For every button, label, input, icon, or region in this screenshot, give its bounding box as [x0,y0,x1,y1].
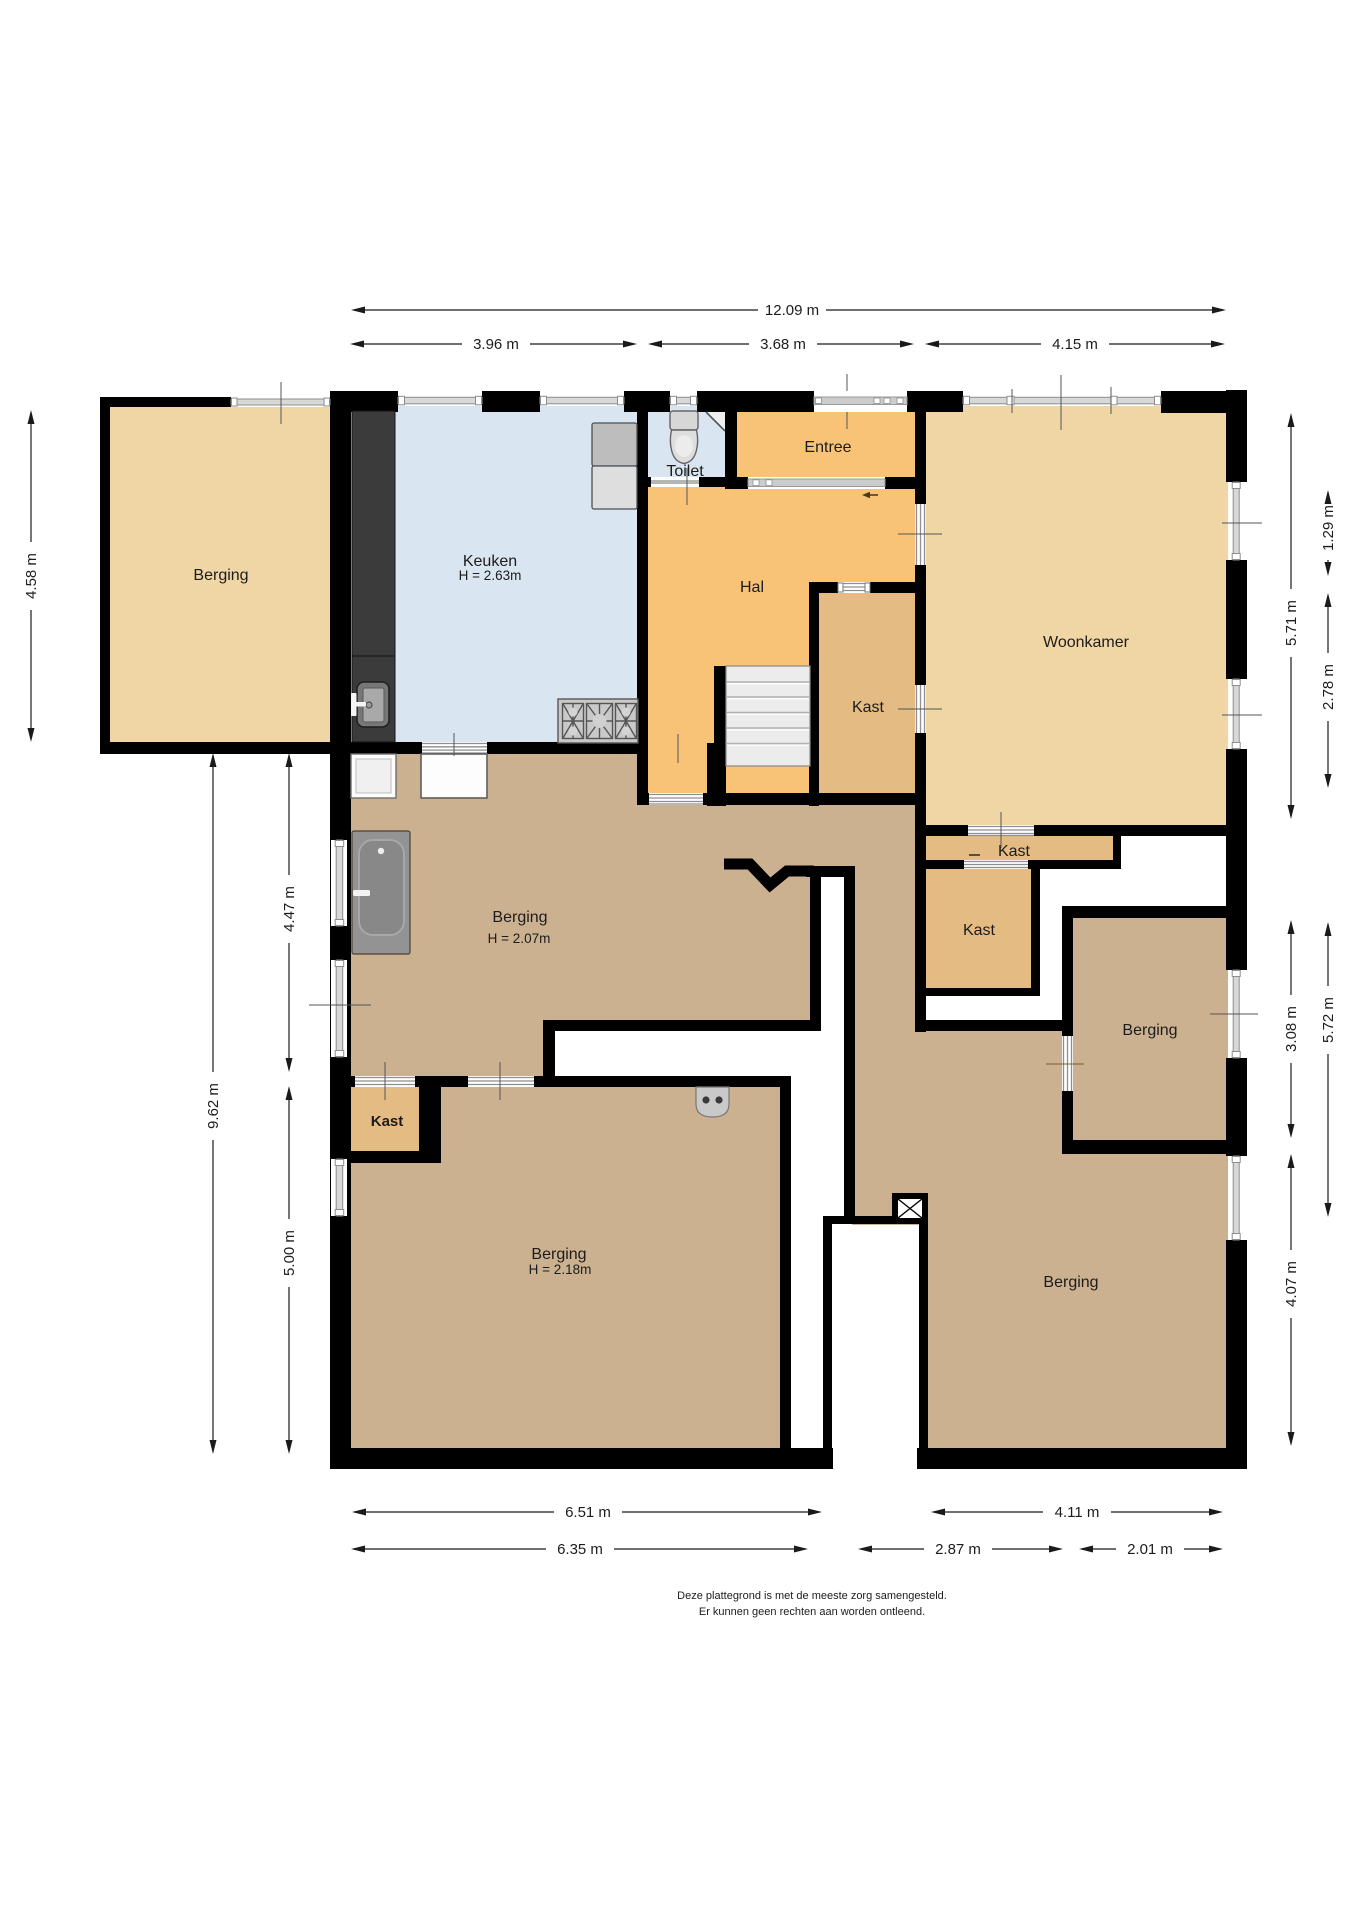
svg-text:Hal: Hal [740,579,764,596]
svg-text:6.35 m: 6.35 m [557,1541,603,1558]
svg-text:H = 2.63m: H = 2.63m [459,568,522,583]
svg-text:Woonkamer: Woonkamer [1043,634,1130,651]
svg-text:Berging: Berging [492,909,547,926]
svg-text:4.07 m: 4.07 m [1283,1261,1300,1307]
svg-text:Deze plattegrond is met de mee: Deze plattegrond is met de meeste zorg s… [677,1590,947,1602]
svg-text:Er kunnen geen rechten aan wor: Er kunnen geen rechten aan worden ontlee… [699,1606,925,1618]
svg-text:5.72 m: 5.72 m [1320,997,1337,1043]
svg-text:3.68 m: 3.68 m [760,336,806,353]
svg-text:5.71 m: 5.71 m [1283,600,1300,646]
svg-text:Kast: Kast [998,843,1031,860]
svg-text:4.47 m: 4.47 m [281,886,298,932]
svg-text:4.58 m: 4.58 m [23,553,40,599]
svg-text:6.51 m: 6.51 m [565,1504,611,1521]
svg-text:Kast: Kast [852,699,885,716]
svg-text:Berging: Berging [531,1246,586,1263]
svg-text:5.00 m: 5.00 m [281,1230,298,1276]
svg-text:3.08 m: 3.08 m [1283,1006,1300,1052]
svg-text:H = 2.18m: H = 2.18m [529,1262,592,1277]
svg-text:Entree: Entree [804,439,851,456]
svg-text:4.15 m: 4.15 m [1052,336,1098,353]
svg-text:H = 2.07m: H = 2.07m [488,931,551,946]
svg-text:Toilet: Toilet [666,463,704,480]
svg-text:2.87 m: 2.87 m [935,1541,981,1558]
svg-text:2.78 m: 2.78 m [1320,664,1337,710]
svg-text:1.29 m: 1.29 m [1320,505,1337,551]
svg-text:12.09 m: 12.09 m [765,302,819,319]
svg-text:Kast: Kast [963,922,996,939]
svg-text:3.96 m: 3.96 m [473,336,519,353]
svg-text:9.62 m: 9.62 m [205,1083,222,1129]
svg-text:2.01 m: 2.01 m [1127,1541,1173,1558]
svg-text:Berging: Berging [193,567,248,584]
svg-text:Kast: Kast [371,1113,404,1130]
svg-text:4.11 m: 4.11 m [1055,1504,1100,1521]
svg-text:Berging: Berging [1122,1022,1177,1039]
svg-text:Berging: Berging [1043,1274,1098,1291]
